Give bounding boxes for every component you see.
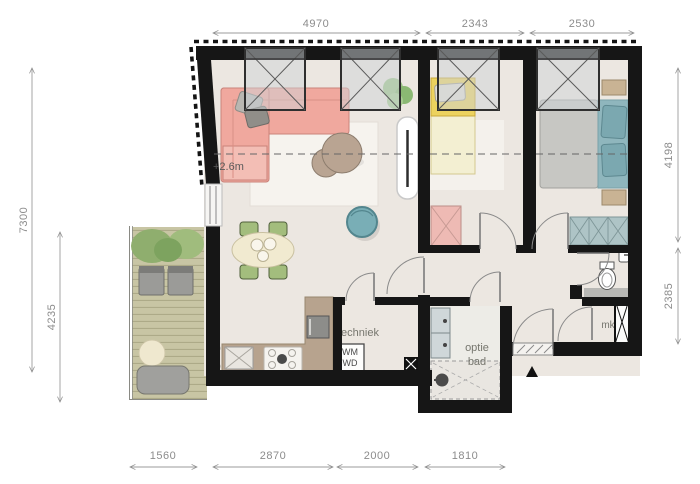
shower: [431, 361, 500, 399]
dim-bottom-3: 2000: [364, 450, 390, 462]
dim-bottom-2: 2870: [260, 450, 286, 462]
wall: [333, 297, 342, 370]
washer-label: WM: [342, 347, 358, 357]
bathroom-vanity: [431, 308, 450, 358]
floorplan-page: WM WD techniek optie bad: [0, 0, 700, 484]
meter-closet-label: mk: [601, 320, 615, 331]
wall: [523, 60, 536, 253]
nightstand: [602, 80, 626, 95]
pillow: [601, 105, 627, 139]
balcony: [129, 226, 207, 400]
window: [341, 48, 400, 110]
bath-option-label: optie: [465, 342, 489, 354]
ceiling-height-label: +2.6m: [213, 161, 244, 173]
dim-left-2: 4235: [46, 304, 58, 330]
wall: [418, 400, 512, 413]
wardrobe-pink: [431, 206, 461, 246]
wall: [553, 342, 642, 356]
dim-top-1: 4970: [303, 18, 329, 30]
wall: [206, 370, 432, 386]
wall: [418, 245, 480, 253]
dim-bottom-4: 1810: [452, 450, 478, 462]
dim-right-1: 4198: [663, 142, 675, 168]
balcony-chair: [168, 266, 193, 295]
window: [537, 48, 599, 110]
wall: [582, 297, 628, 306]
dim-bottom-1: 1560: [150, 450, 176, 462]
pillow: [601, 143, 627, 176]
window: [438, 48, 499, 110]
shaft: [404, 357, 418, 371]
cooktop: [264, 347, 302, 371]
wardrobe-teal: [570, 217, 628, 245]
wall: [375, 297, 418, 305]
nightstand: [602, 190, 626, 205]
kitchen-sink: [225, 347, 253, 369]
wall: [418, 295, 430, 413]
balcony-bench: [137, 366, 189, 394]
balcony-table: [139, 340, 165, 366]
balcony-chair: [139, 266, 164, 295]
wall: [568, 245, 642, 253]
entrance-threshold: [513, 343, 553, 355]
dryer-label: WD: [343, 358, 358, 368]
dim-right-2: 2385: [663, 283, 675, 309]
wall: [418, 60, 430, 253]
shaft: [615, 300, 629, 344]
radiator: [397, 117, 418, 199]
wall: [430, 297, 470, 306]
window: [245, 48, 305, 110]
balcony-door: [205, 184, 222, 226]
wall: [516, 245, 532, 253]
wall: [570, 285, 582, 299]
bath-option-label: bad: [468, 356, 486, 368]
toilet: [599, 262, 616, 290]
wall: [206, 226, 220, 386]
dim-top-2: 2343: [462, 18, 488, 30]
dim-left-1: 7300: [18, 207, 30, 233]
dim-top-3: 2530: [569, 18, 595, 30]
wall: [628, 60, 642, 356]
floor-plan-svg: WM WD techniek optie bad: [0, 0, 700, 484]
techniek-label: techniek: [338, 327, 379, 339]
wall: [500, 306, 512, 413]
